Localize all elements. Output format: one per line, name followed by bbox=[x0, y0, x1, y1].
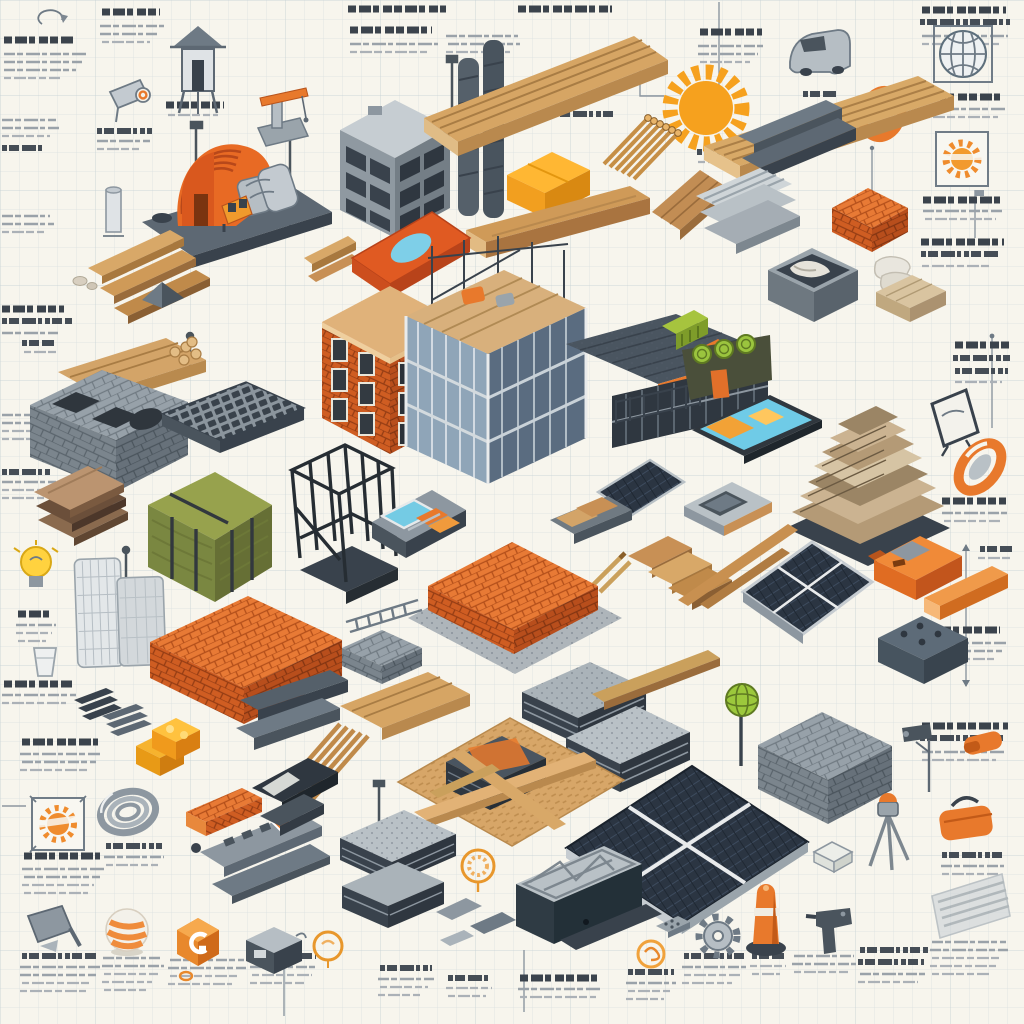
gear-sketch bbox=[699, 917, 737, 955]
pillar-sketch bbox=[103, 187, 124, 236]
glass-sketch bbox=[34, 648, 56, 676]
framed-sunburst-sketch bbox=[936, 132, 988, 186]
isometric-scene: Isometric collage of construction buildi… bbox=[0, 0, 1024, 1024]
framed-sunburst-left bbox=[30, 796, 86, 852]
illustration-canvas: Isometric collage of construction buildi… bbox=[0, 0, 1024, 1024]
